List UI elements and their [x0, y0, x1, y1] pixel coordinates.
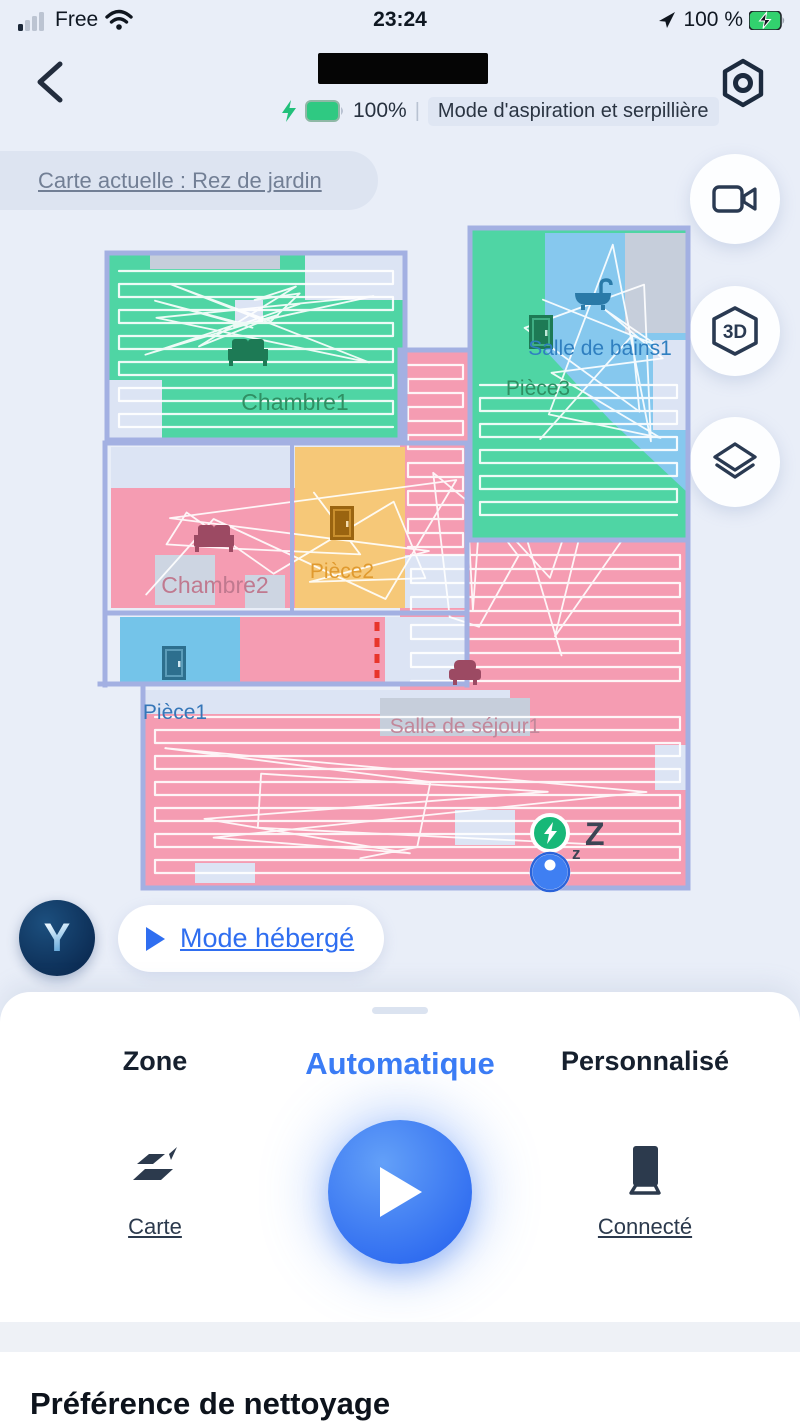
room-label-piece3[interactable]: Pièce3 [506, 377, 570, 400]
cleaning-mode-badge: Mode d'aspiration et serpillière [428, 97, 719, 126]
hosted-mode-button[interactable]: Mode hébergé [118, 905, 384, 972]
room-label-chambre2[interactable]: Chambre2 [161, 572, 268, 598]
current-map-selector[interactable]: Carte actuelle : Rez de jardin [0, 151, 378, 210]
robot-battery-icon [305, 99, 345, 123]
room-label-piece2[interactable]: Pièce2 [310, 560, 374, 583]
play-small-icon [144, 926, 166, 952]
map-edit-button[interactable]: Carte [0, 1144, 310, 1240]
play-icon [374, 1163, 426, 1221]
video-camera-icon [712, 183, 758, 215]
charging-dock-marker[interactable] [532, 815, 568, 851]
charging-bolt-icon [281, 99, 297, 123]
room-label-chambre1[interactable]: Chambre1 [241, 389, 348, 415]
robot-battery-label: 100% [353, 99, 407, 123]
map-edit-label: Carte [128, 1214, 182, 1240]
svg-text:3D: 3D [723, 322, 747, 343]
back-button[interactable] [30, 58, 70, 106]
robot-status-row: 100% | Mode d'aspiration et serpillière [281, 95, 719, 127]
floor-map[interactable]: Chambre1 Salle de bains1 Pièce3 Chambre2… [95, 225, 705, 895]
tab-personnalise[interactable]: Personnalisé [490, 1046, 800, 1077]
sleep-z-small: z [572, 844, 581, 863]
room-fills [107, 228, 688, 888]
layers-icon [711, 441, 759, 483]
door-icon-piece1 [162, 646, 186, 680]
current-map-label: Carte actuelle : Rez de jardin [38, 168, 322, 194]
dock-status-label: Connecté [598, 1214, 692, 1240]
status-bar: Free 23:24 100 % [0, 0, 800, 44]
battery-charging-icon [749, 11, 786, 30]
map-layers-icon [127, 1144, 183, 1196]
room-label-salle-de-sejour1[interactable]: Salle de séjour1 [390, 715, 541, 738]
sheet-drag-handle[interactable] [372, 1007, 428, 1014]
sleep-z-big: Z [585, 816, 605, 852]
dock-icon [623, 1144, 667, 1196]
robot-marker[interactable] [531, 853, 569, 891]
location-arrow-icon [657, 10, 677, 30]
hosted-mode-label: Mode hébergé [180, 923, 354, 954]
section-divider [0, 1322, 800, 1352]
room-label-salle-de-bains1[interactable]: Salle de bains1 [528, 337, 672, 360]
preferences-title: Préférence de nettoyage [30, 1386, 390, 1422]
settings-button[interactable] [719, 58, 767, 108]
start-cleaning-button[interactable] [328, 1120, 472, 1264]
three-d-icon: 3D [710, 305, 760, 357]
door-icon-piece2 [330, 506, 354, 540]
device-name-redacted [318, 53, 488, 84]
app-logo[interactable]: Y [19, 900, 95, 976]
dock-status-button[interactable]: Connecté [490, 1144, 800, 1240]
status-divider: | [415, 100, 420, 123]
battery-percent-label: 100 % [683, 8, 743, 32]
room-label-piece1[interactable]: Pièce1 [143, 701, 207, 724]
